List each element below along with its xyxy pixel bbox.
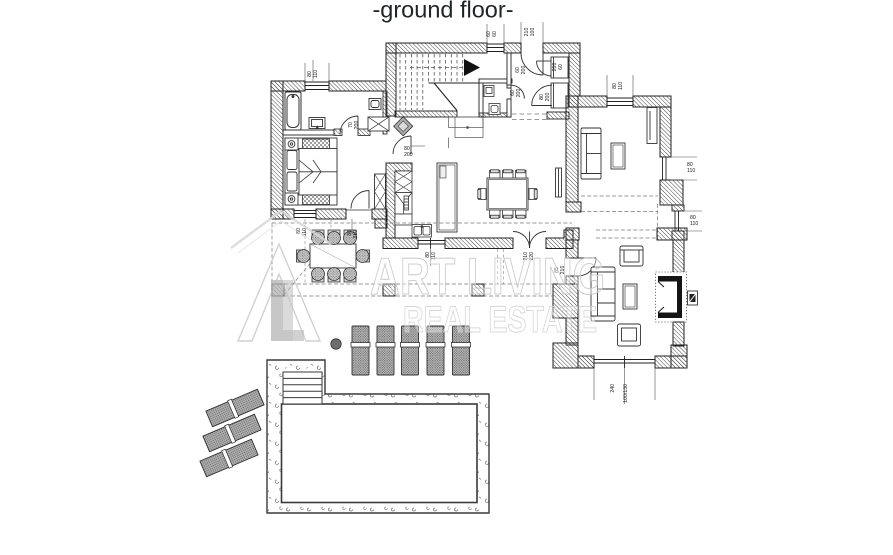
svg-text:200: 200 [516, 89, 522, 98]
svg-text:100: 100 [530, 28, 536, 37]
svg-text:-ground floor-: -ground floor- [372, 0, 513, 23]
svg-text:100/130: 100/130 [623, 384, 629, 403]
svg-text:110: 110 [618, 82, 624, 90]
svg-text:110: 110 [313, 70, 319, 78]
svg-text:200: 200 [404, 152, 413, 158]
svg-text:200: 200 [354, 121, 360, 130]
svg-text:200: 200 [545, 93, 551, 102]
svg-text:60: 60 [558, 64, 564, 70]
svg-text:REAL ESTATE: REAL ESTATE [403, 299, 597, 340]
svg-text:210: 210 [353, 230, 359, 239]
svg-text:ART LIVING: ART LIVING [370, 248, 605, 306]
svg-text:240: 240 [610, 384, 616, 393]
svg-text:200: 200 [521, 66, 527, 75]
svg-text:60: 60 [492, 31, 498, 37]
svg-text:110: 110 [690, 221, 698, 227]
svg-text:110: 110 [687, 168, 695, 174]
